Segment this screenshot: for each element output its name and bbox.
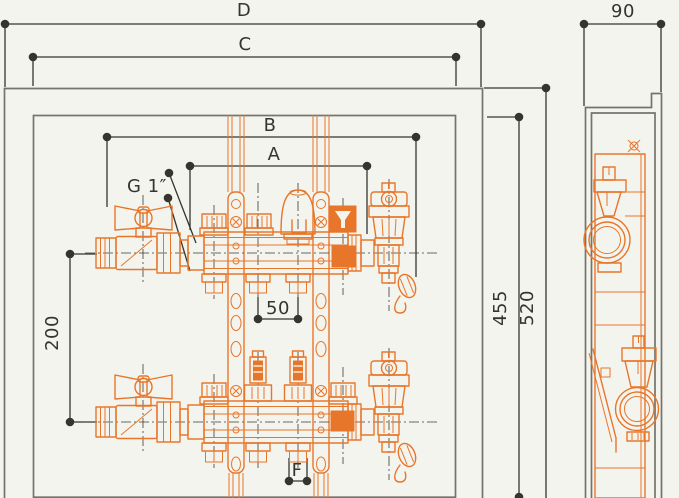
manifold-bottom-assembly: [85, 348, 440, 482]
dimension-50: 50: [254, 297, 303, 323]
dim-label-f: F: [292, 460, 303, 481]
dim-label-200: 200: [42, 315, 63, 351]
dim-label-50: 50: [266, 298, 290, 319]
mounting-rail-left: [228, 115, 244, 498]
manifold-cabinet-drawing: D C B A G 1″: [0, 0, 679, 498]
dimension-90: 90: [580, 1, 666, 106]
dim-label-520: 520: [517, 290, 538, 326]
technical-drawing: D C B A G 1″: [0, 0, 679, 498]
dim-label-b: B: [264, 115, 277, 136]
side-view-assembly: [584, 140, 659, 498]
dim-label-90: 90: [611, 1, 635, 22]
crosshair-icon: [628, 140, 640, 152]
dim-label-d: D: [237, 0, 251, 21]
dim-label-g1: G 1″: [127, 176, 167, 197]
manifold-top-assembly: [85, 179, 440, 313]
dim-label-c: C: [238, 34, 251, 55]
mounting-rail-right: [313, 115, 329, 498]
rail-side-profile: [595, 154, 645, 498]
side-lower-valve: [589, 336, 659, 452]
dimension-g1: G 1″: [127, 169, 196, 271]
dimension-200: 200: [42, 250, 97, 427]
end-valve-body: [331, 411, 354, 431]
dim-label-455: 455: [490, 290, 511, 326]
dim-label-a: A: [268, 144, 281, 165]
dimension-c: C: [29, 34, 461, 86]
thermo-actuator: [281, 190, 315, 244]
